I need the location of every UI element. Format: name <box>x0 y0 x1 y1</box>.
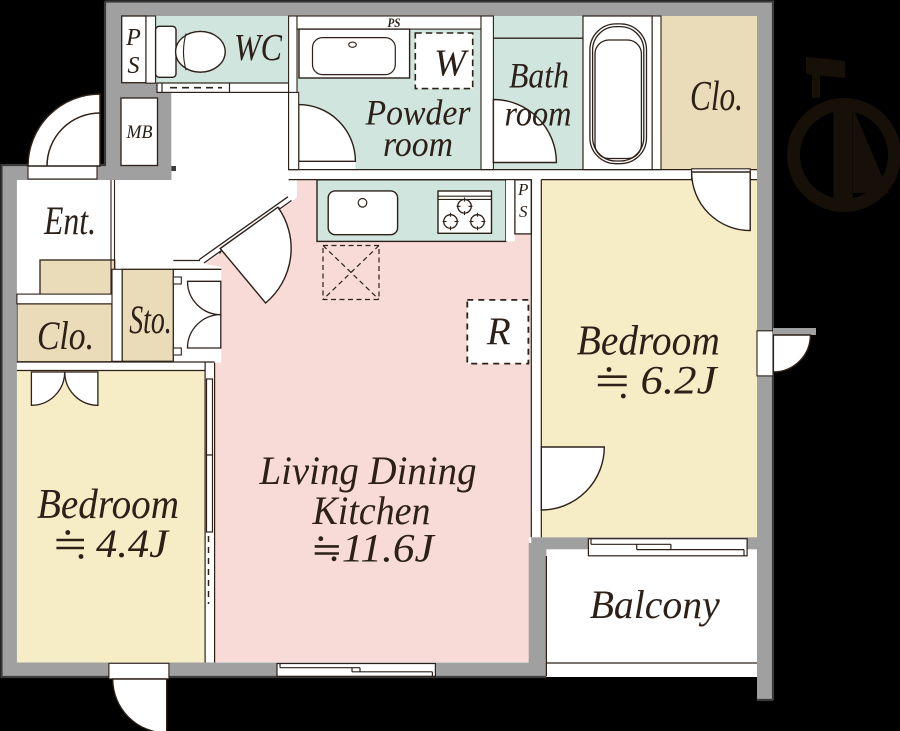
svg-text:PS: PS <box>388 16 401 30</box>
svg-text:Ent.: Ent. <box>43 198 96 243</box>
svg-text:P: P <box>125 25 141 51</box>
svg-text:room: room <box>505 94 572 134</box>
svg-text:WC: WC <box>234 27 283 69</box>
svg-text:Bath: Bath <box>509 56 569 96</box>
svg-text:MB: MB <box>126 122 153 143</box>
svg-text:4.4J: 4.4J <box>96 521 170 566</box>
svg-text:W: W <box>434 42 469 84</box>
svg-text:Sto.: Sto. <box>129 297 172 342</box>
svg-text:S: S <box>519 202 528 221</box>
svg-text:6.2J: 6.2J <box>641 357 720 402</box>
svg-text:R: R <box>486 310 511 353</box>
svg-text:Living Dining: Living Dining <box>259 448 477 493</box>
svg-text:room: room <box>383 124 453 164</box>
svg-text:11.6J: 11.6J <box>342 526 436 571</box>
svg-text:Clo.: Clo. <box>690 74 743 120</box>
svg-text:P: P <box>517 180 528 199</box>
svg-text:Clo.: Clo. <box>37 313 94 358</box>
svg-text:Balcony: Balcony <box>590 582 720 627</box>
svg-text:S: S <box>128 53 140 79</box>
